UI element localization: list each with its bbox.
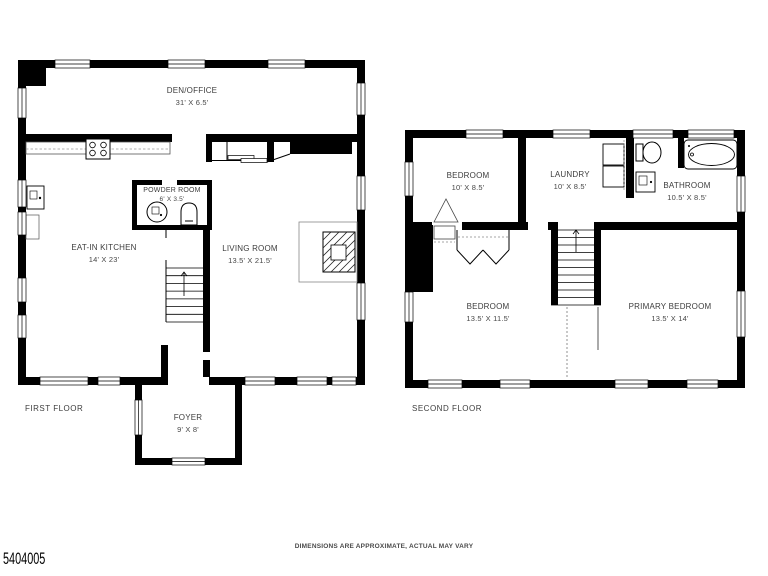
- room-name: LAUNDRY: [550, 169, 590, 181]
- room-dims: 14' X 23': [71, 254, 136, 266]
- room-dims: 31' X 6.5': [167, 97, 217, 109]
- powder-toilet-icon: [181, 203, 197, 225]
- stairs-second-floor: [551, 230, 601, 305]
- room-dims: 9' X 8': [174, 424, 203, 436]
- bedroom-door-open-icon: [434, 199, 458, 242]
- bathtub-icon: [684, 140, 737, 169]
- room-name: EAT-IN KITCHEN: [71, 242, 136, 254]
- stairs-first-floor: [166, 268, 203, 322]
- room-label-primary-bedroom: PRIMARY BEDROOM 13.5' X 14': [629, 301, 712, 325]
- room-dims: 13.5' X 14': [629, 313, 712, 325]
- photo-id: 5404005: [3, 549, 45, 569]
- second-floor-label: SECOND FLOOR: [412, 404, 482, 413]
- room-dims: 13.5' X 11.5': [466, 313, 509, 325]
- kitchen-sink-icon: [26, 186, 44, 239]
- room-label-foyer: FOYER 9' X 8': [174, 412, 203, 436]
- room-label-bathroom: BATHROOM 10.5' X 8.5': [663, 180, 710, 204]
- room-name: BEDROOM: [447, 170, 490, 182]
- room-label-den-office: DEN/OFFICE 31' X 6.5': [167, 85, 217, 109]
- room-name: DEN/OFFICE: [167, 85, 217, 97]
- room-name: BEDROOM: [466, 301, 509, 313]
- room-label-living-room: LIVING ROOM 13.5' X 21.5': [222, 243, 278, 267]
- room-label-bedroom-bottom: BEDROOM 13.5' X 11.5': [466, 301, 509, 325]
- first-floor-thin-walls: [166, 142, 290, 322]
- disclaimer-text: DIMENSIONS ARE APPROXIMATE, ACTUAL MAY V…: [295, 543, 473, 550]
- room-dims: 13.5' X 21.5': [222, 255, 278, 267]
- first-floor-label: FIRST FLOOR: [25, 404, 83, 413]
- floorplan-drawing: [0, 0, 768, 576]
- hall-closet-sliding-door: [228, 156, 267, 163]
- room-label-bedroom-top: BEDROOM 10' X 8.5': [447, 170, 490, 194]
- washer-dryer-icon: [603, 140, 624, 192]
- stove-icon: [86, 139, 110, 159]
- powder-sink-icon: [147, 202, 167, 222]
- room-name: LIVING ROOM: [222, 243, 278, 255]
- room-label-laundry: LAUNDRY 10' X 8.5': [550, 169, 590, 193]
- bedroom-closet-bifold-doors: [457, 230, 509, 264]
- bathroom-sink-icon: [636, 172, 655, 192]
- room-label-powder-room: POWDER ROOM 6' X 3.5': [143, 186, 200, 204]
- floorplan-page: DEN/OFFICE 31' X 6.5' POWDER ROOM 6' X 3…: [0, 0, 768, 576]
- room-name: PRIMARY BEDROOM: [629, 301, 712, 313]
- fireplace-icon: [299, 222, 357, 282]
- room-name: BATHROOM: [663, 180, 710, 192]
- room-dims: 10' X 8.5': [550, 181, 590, 193]
- room-name: POWDER ROOM: [143, 186, 200, 195]
- room-dims: 10' X 8.5': [447, 182, 490, 194]
- bathroom-toilet-icon: [636, 142, 661, 163]
- room-name: FOYER: [174, 412, 203, 424]
- room-dims: 10.5' X 8.5': [663, 192, 710, 204]
- room-dims: 6' X 3.5': [143, 195, 200, 204]
- hall-closet-under-stairs: [567, 307, 598, 377]
- room-label-eat-in-kitchen: EAT-IN KITCHEN 14' X 23': [71, 242, 136, 266]
